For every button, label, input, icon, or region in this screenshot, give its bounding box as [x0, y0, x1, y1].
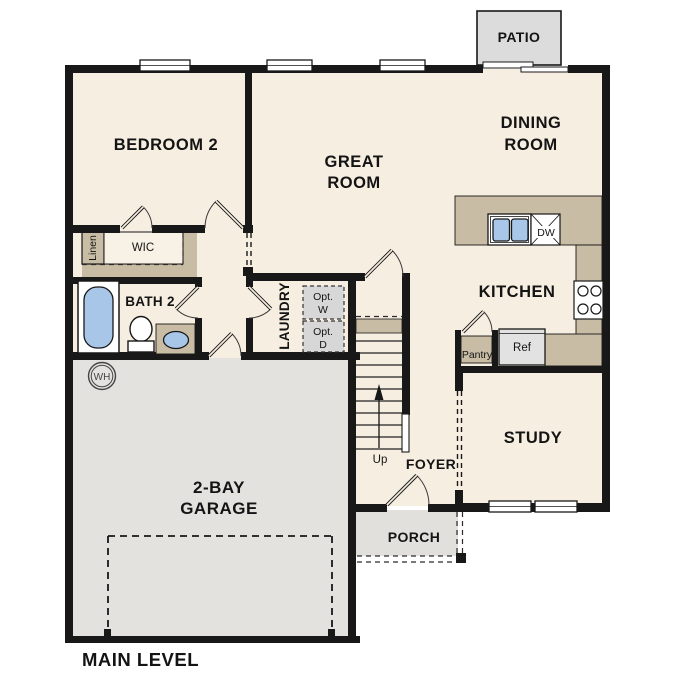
- refrigerator-label: Ref: [513, 342, 532, 354]
- garage-label-line1: 2-BAY: [193, 478, 245, 497]
- floor-plan-main-level: PATIO DINING ROOM BEDROOM 2 GREAT ROOM K…: [0, 0, 687, 687]
- wall-segment: [245, 65, 252, 228]
- window: [267, 60, 312, 71]
- wall-segment: [348, 273, 365, 281]
- great-room-label-line2: ROOM: [327, 174, 380, 192]
- water-heater-label: WH: [94, 372, 111, 383]
- wall-segment: [455, 366, 610, 373]
- wall-segment: [246, 318, 253, 360]
- wall-segment: [455, 490, 463, 512]
- wic-label: WIC: [132, 242, 154, 254]
- linen-label: Linen: [87, 235, 99, 261]
- wall-segment: [455, 330, 461, 366]
- bath2-label: BATH 2: [125, 294, 175, 309]
- optional-washer-label-line2: W: [318, 304, 328, 316]
- kitchen-counter-right-lower: [576, 318, 602, 335]
- porch-post: [456, 553, 466, 563]
- up-label: Up: [373, 454, 388, 466]
- wall-segment: [152, 225, 205, 233]
- kitchen-label: KITCHEN: [479, 283, 556, 301]
- wall-segment: [65, 636, 360, 643]
- toilet-tank: [128, 341, 154, 352]
- optional-dryer-label-line1: Opt.: [313, 326, 333, 338]
- dining-room-label-line1: DINING: [501, 114, 562, 132]
- wall-segment: [241, 352, 360, 360]
- wall-segment: [195, 277, 202, 287]
- toilet-icon: [130, 317, 152, 342]
- garage-label-line2: GARAGE: [180, 499, 258, 518]
- wall-segment: [455, 373, 463, 391]
- stair-landing-strip: [356, 319, 402, 333]
- wall-segment: [428, 504, 456, 512]
- pantry-label: Pantry: [462, 349, 493, 361]
- main-level-title: MAIN LEVEL: [82, 649, 199, 670]
- wall-segment: [350, 504, 387, 512]
- kitchen-counter-bottom: [545, 334, 602, 366]
- porch-label: PORCH: [388, 529, 441, 545]
- bedroom2-label: BEDROOM 2: [114, 136, 218, 154]
- foyer-label: FOYER: [406, 456, 456, 472]
- wall-segment: [195, 318, 202, 354]
- window: [140, 60, 190, 71]
- patio-label: PATIO: [498, 29, 541, 45]
- wall-segment: [65, 225, 120, 233]
- wall-segment: [243, 225, 253, 233]
- wall-segment: [246, 273, 253, 287]
- kitchen-sink-icon: [488, 214, 531, 245]
- wall-segment: [492, 330, 498, 366]
- stove-icon: [574, 281, 603, 319]
- wall-segment: [348, 273, 356, 643]
- kitchen-counter-right-upper: [576, 245, 602, 282]
- dining-room-label-line2: ROOM: [504, 136, 557, 154]
- optional-dryer-label-line2: D: [319, 339, 327, 351]
- bathtub-icon: [84, 287, 113, 348]
- optional-washer-label-line1: Opt.: [313, 291, 333, 303]
- vanity-sink-icon: [164, 332, 189, 349]
- floor-plan-page: PATIO DINING ROOM BEDROOM 2 GREAT ROOM K…: [0, 0, 687, 687]
- window: [380, 60, 425, 71]
- window: [489, 501, 531, 512]
- wic-poche-right: [183, 230, 197, 277]
- wall-segment: [402, 273, 410, 415]
- great-room-label-line1: GREAT: [324, 153, 383, 171]
- dishwasher-label: DW: [537, 227, 555, 239]
- laundry-label: LAUNDRY: [277, 282, 292, 350]
- study-label: STUDY: [504, 429, 562, 447]
- wall-segment: [246, 273, 350, 281]
- stair-handrail: [402, 414, 409, 452]
- interior-floor-lower: [352, 360, 606, 506]
- window: [535, 501, 577, 512]
- wall-segment: [456, 503, 610, 512]
- wic-poche-band: [82, 264, 197, 277]
